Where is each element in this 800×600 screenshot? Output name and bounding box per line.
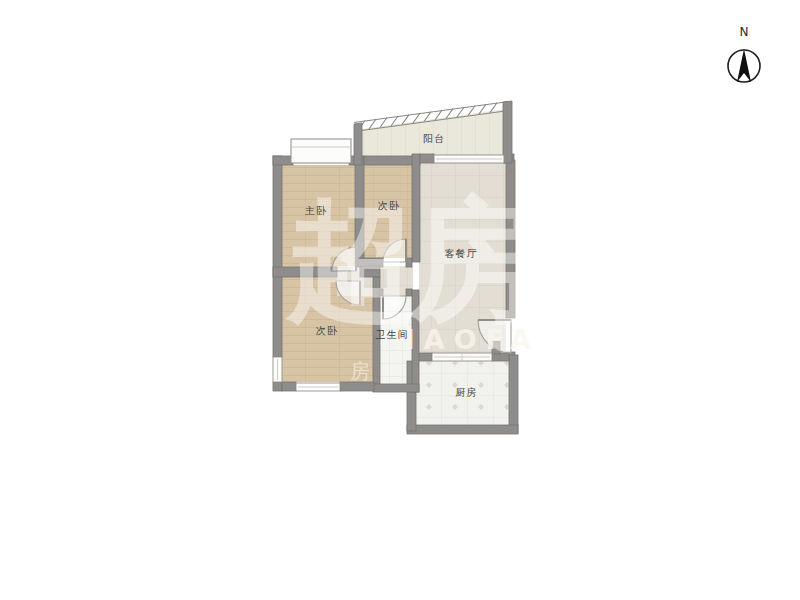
room-label-kitchen: 厨房	[455, 386, 477, 400]
side-window	[273, 357, 282, 382]
kitchen-sliding-door	[432, 353, 492, 361]
room-label-bedroom-top: 次卧	[378, 199, 400, 213]
bedroom-bottom-window	[296, 383, 340, 391]
room-label-bedroom-bottom: 次卧	[316, 324, 338, 338]
floor-plan-drawing	[0, 0, 800, 600]
room-label-master-bedroom: 主卧	[305, 204, 327, 218]
compass-north-label: N	[740, 25, 749, 39]
compass: N	[716, 22, 772, 88]
bay-window	[291, 139, 351, 163]
compass-icon	[724, 44, 764, 88]
room-label-bathroom: 卫生间	[376, 328, 409, 342]
balcony-sliding-window	[434, 155, 504, 163]
room-label-living-dining: 客餐厅	[445, 247, 478, 261]
floor-plan-page: 超房 HAOFA 房 阳台 主卧 次卧 客餐厅 次卧 卫生间 厨房 N	[0, 0, 800, 600]
room-label-balcony: 阳台	[423, 132, 445, 146]
